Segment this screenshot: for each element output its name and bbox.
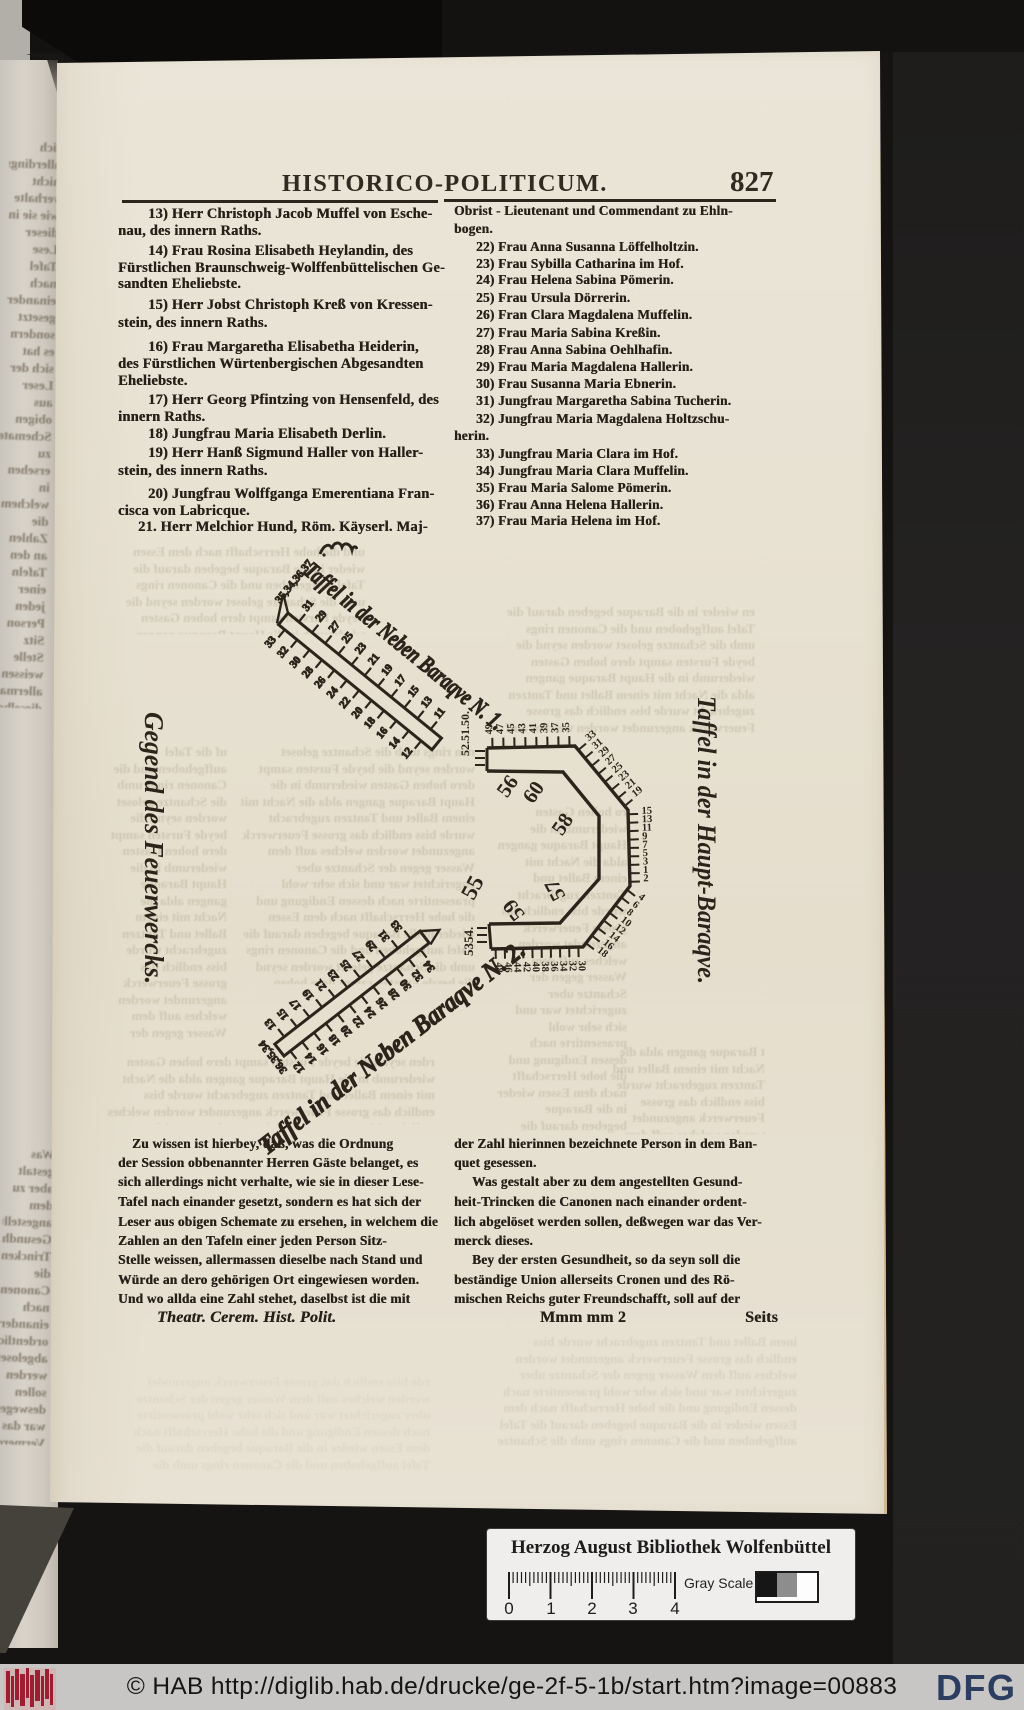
svg-text:11: 11: [432, 705, 448, 721]
svg-text:21: 21: [366, 651, 382, 667]
svg-text:27: 27: [326, 619, 343, 635]
svg-text:29: 29: [363, 937, 380, 953]
svg-text:13: 13: [262, 1016, 279, 1032]
svg-text:29: 29: [313, 608, 330, 624]
svg-text:55: 55: [456, 871, 489, 903]
svg-text:14: 14: [387, 735, 404, 751]
svg-text:12: 12: [399, 745, 416, 761]
svg-text:5354.: 5354.: [461, 927, 476, 956]
svg-text:Gegend des Feuerwercks.: Gegend des Feuerwercks.: [139, 712, 169, 984]
svg-text:24: 24: [325, 684, 342, 700]
svg-text:41: 41: [528, 723, 539, 734]
svg-text:20: 20: [349, 704, 366, 720]
svg-text:48: 48: [493, 962, 504, 973]
svg-text:30: 30: [287, 654, 304, 670]
svg-text:21: 21: [313, 977, 329, 993]
svg-text:52.51.50.: 52.51.50.: [458, 711, 472, 756]
svg-text:45: 45: [506, 723, 517, 734]
svg-text:13: 13: [419, 694, 436, 710]
svg-text:17: 17: [287, 996, 304, 1012]
svg-text:56: 56: [491, 771, 523, 802]
svg-text:58: 58: [546, 809, 578, 840]
svg-text:2: 2: [643, 873, 649, 884]
svg-text:49: 49: [484, 724, 495, 735]
svg-text:23: 23: [353, 640, 370, 656]
svg-text:23: 23: [325, 966, 342, 982]
svg-text:37: 37: [550, 722, 561, 733]
svg-text:18: 18: [362, 715, 379, 731]
svg-text:19: 19: [300, 986, 317, 1002]
svg-text:19: 19: [379, 662, 396, 678]
svg-text:35: 35: [561, 722, 572, 733]
svg-text:22: 22: [337, 694, 354, 710]
svg-text:16: 16: [374, 725, 391, 741]
svg-text:27: 27: [350, 947, 367, 963]
svg-text:26: 26: [312, 674, 329, 690]
svg-text:Taffel in der Haupt-Baraqve.: Taffel in der Haupt-Baraqve.: [692, 696, 721, 984]
svg-text:43: 43: [517, 723, 528, 734]
svg-text:32: 32: [275, 644, 292, 660]
svg-text:25: 25: [338, 957, 355, 973]
svg-text:33: 33: [263, 634, 280, 650]
svg-text:15: 15: [275, 1006, 292, 1022]
svg-text:47: 47: [495, 724, 506, 735]
svg-text:33: 33: [388, 917, 405, 933]
svg-text:28: 28: [300, 664, 317, 680]
svg-text:17: 17: [392, 672, 409, 688]
svg-text:59: 59: [498, 895, 530, 926]
svg-text:15: 15: [405, 683, 422, 699]
svg-text:31: 31: [300, 598, 316, 614]
svg-text:34: 34: [421, 958, 438, 974]
svg-text:31: 31: [376, 928, 392, 944]
svg-text:39: 39: [539, 723, 550, 734]
svg-text:25: 25: [340, 629, 357, 645]
svg-text:57: 57: [539, 875, 570, 905]
svg-text:60: 60: [517, 777, 549, 808]
